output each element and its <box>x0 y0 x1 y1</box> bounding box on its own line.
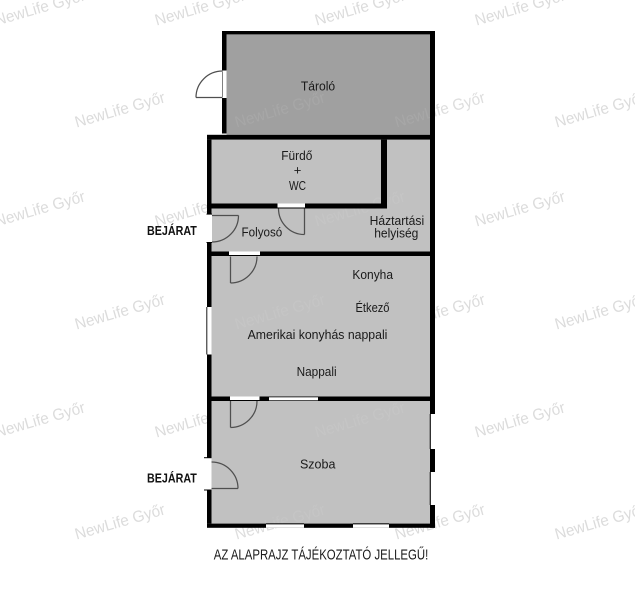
svg-text:AZ ALAPRAJZ TÁJÉKOZTATÓ JELLEG: AZ ALAPRAJZ TÁJÉKOZTATÓ JELLEGŰ! <box>214 547 429 564</box>
svg-text:Étkező: Étkező <box>356 300 390 315</box>
svg-text:Szoba: Szoba <box>300 457 336 472</box>
svg-text:Konyha: Konyha <box>352 267 393 282</box>
svg-text:WC: WC <box>289 178 306 193</box>
svg-text:Nappali: Nappali <box>297 364 337 379</box>
svg-text:+: + <box>294 163 302 178</box>
svg-text:Amerikai konyhás nappali: Amerikai konyhás nappali <box>248 327 388 342</box>
svg-text:Tároló: Tároló <box>301 79 335 94</box>
svg-text:Fürdő: Fürdő <box>281 148 312 163</box>
svg-text:BEJÁRAT: BEJÁRAT <box>147 223 197 238</box>
svg-text:BEJÁRAT: BEJÁRAT <box>147 471 197 486</box>
svg-text:Folyosó: Folyosó <box>242 225 283 240</box>
svg-text:helyiség: helyiség <box>374 226 418 241</box>
